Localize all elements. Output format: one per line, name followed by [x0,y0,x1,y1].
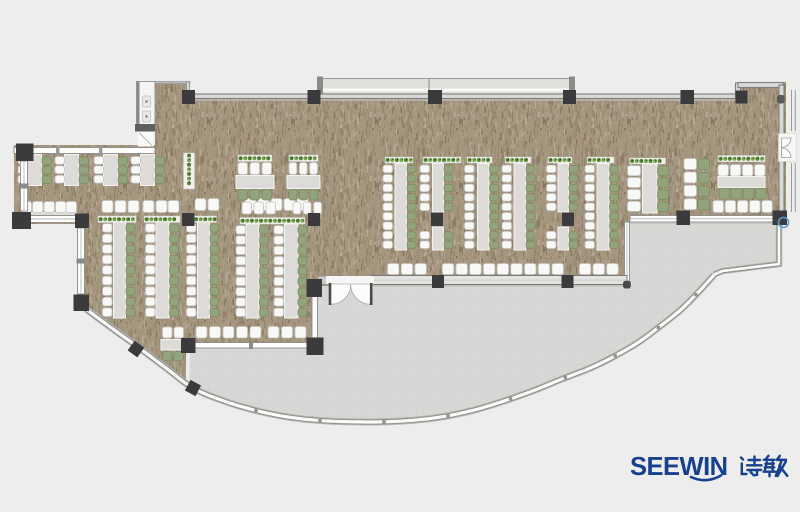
svg-text:SEEWIN: SEEWIN [630,453,728,481]
